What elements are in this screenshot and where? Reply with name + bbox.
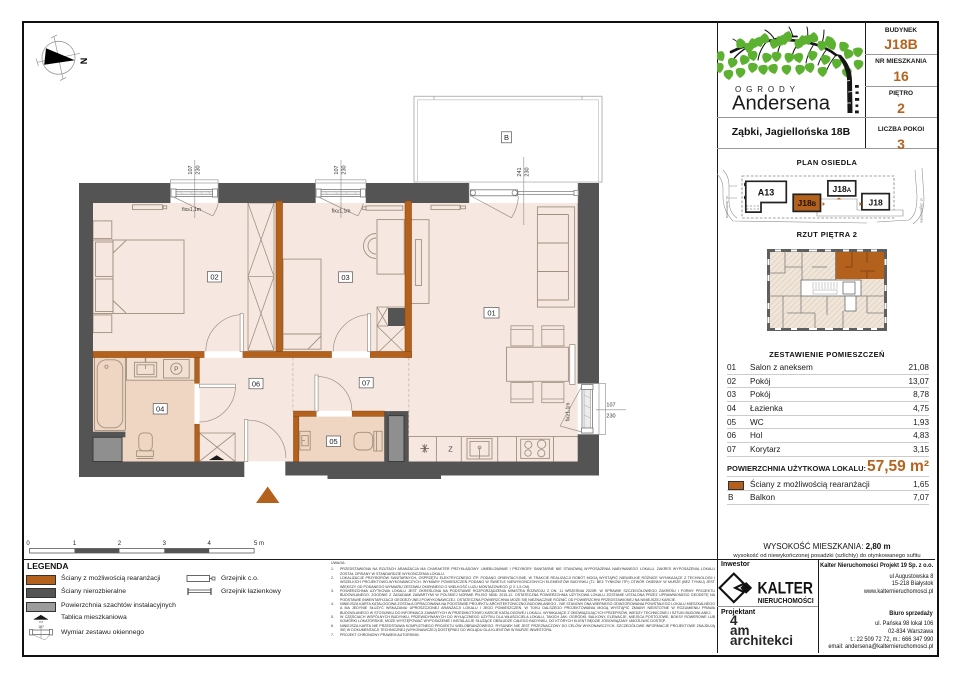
svg-text:ul. Andersena: ul. Andersena [725, 196, 729, 218]
svg-text:3: 3 [163, 541, 167, 547]
svg-text:241: 241 [517, 167, 523, 176]
svg-text:fix≥1,1m: fix≥1,1m [182, 207, 201, 213]
svg-text:06: 06 [252, 379, 260, 388]
svg-text:5 m: 5 m [254, 541, 264, 547]
svg-text:fix≥1,1m: fix≥1,1m [332, 209, 351, 215]
svg-text:0: 0 [26, 541, 30, 547]
svg-text:07: 07 [362, 378, 370, 387]
svg-text:107: 107 [334, 165, 340, 174]
svg-text:02: 02 [210, 273, 218, 282]
svg-text:fix≥1,1m: fix≥1,1m [566, 403, 572, 422]
svg-text:05: 05 [329, 437, 337, 446]
svg-text:J18: J18 [869, 198, 883, 208]
svg-text:230: 230 [525, 167, 531, 176]
svg-text:03: 03 [341, 273, 349, 282]
svg-text:2: 2 [118, 541, 122, 547]
svg-text:N: N [79, 58, 89, 65]
svg-text:A13: A13 [758, 188, 775, 198]
svg-text:Andersena: Andersena [732, 93, 831, 115]
svg-text:KALTER: KALTER [758, 580, 814, 598]
svg-text:04: 04 [156, 405, 164, 414]
svg-text:4: 4 [208, 541, 212, 547]
svg-text:230: 230 [196, 165, 202, 174]
svg-text:107: 107 [606, 402, 615, 408]
svg-text:230: 230 [342, 165, 348, 174]
svg-text:1: 1 [73, 541, 77, 547]
svg-text:P: P [174, 366, 178, 373]
svg-text:107: 107 [188, 165, 194, 174]
svg-text:B: B [504, 133, 509, 142]
svg-text:230: 230 [606, 413, 615, 419]
svg-text:Z: Z [448, 445, 453, 454]
svg-text:ul. Jagiellońska: ul. Jagiellońska [920, 198, 924, 223]
svg-text:NIERUCHOMOŚCI: NIERUCHOMOŚCI [758, 596, 814, 605]
svg-text:01: 01 [487, 309, 495, 318]
